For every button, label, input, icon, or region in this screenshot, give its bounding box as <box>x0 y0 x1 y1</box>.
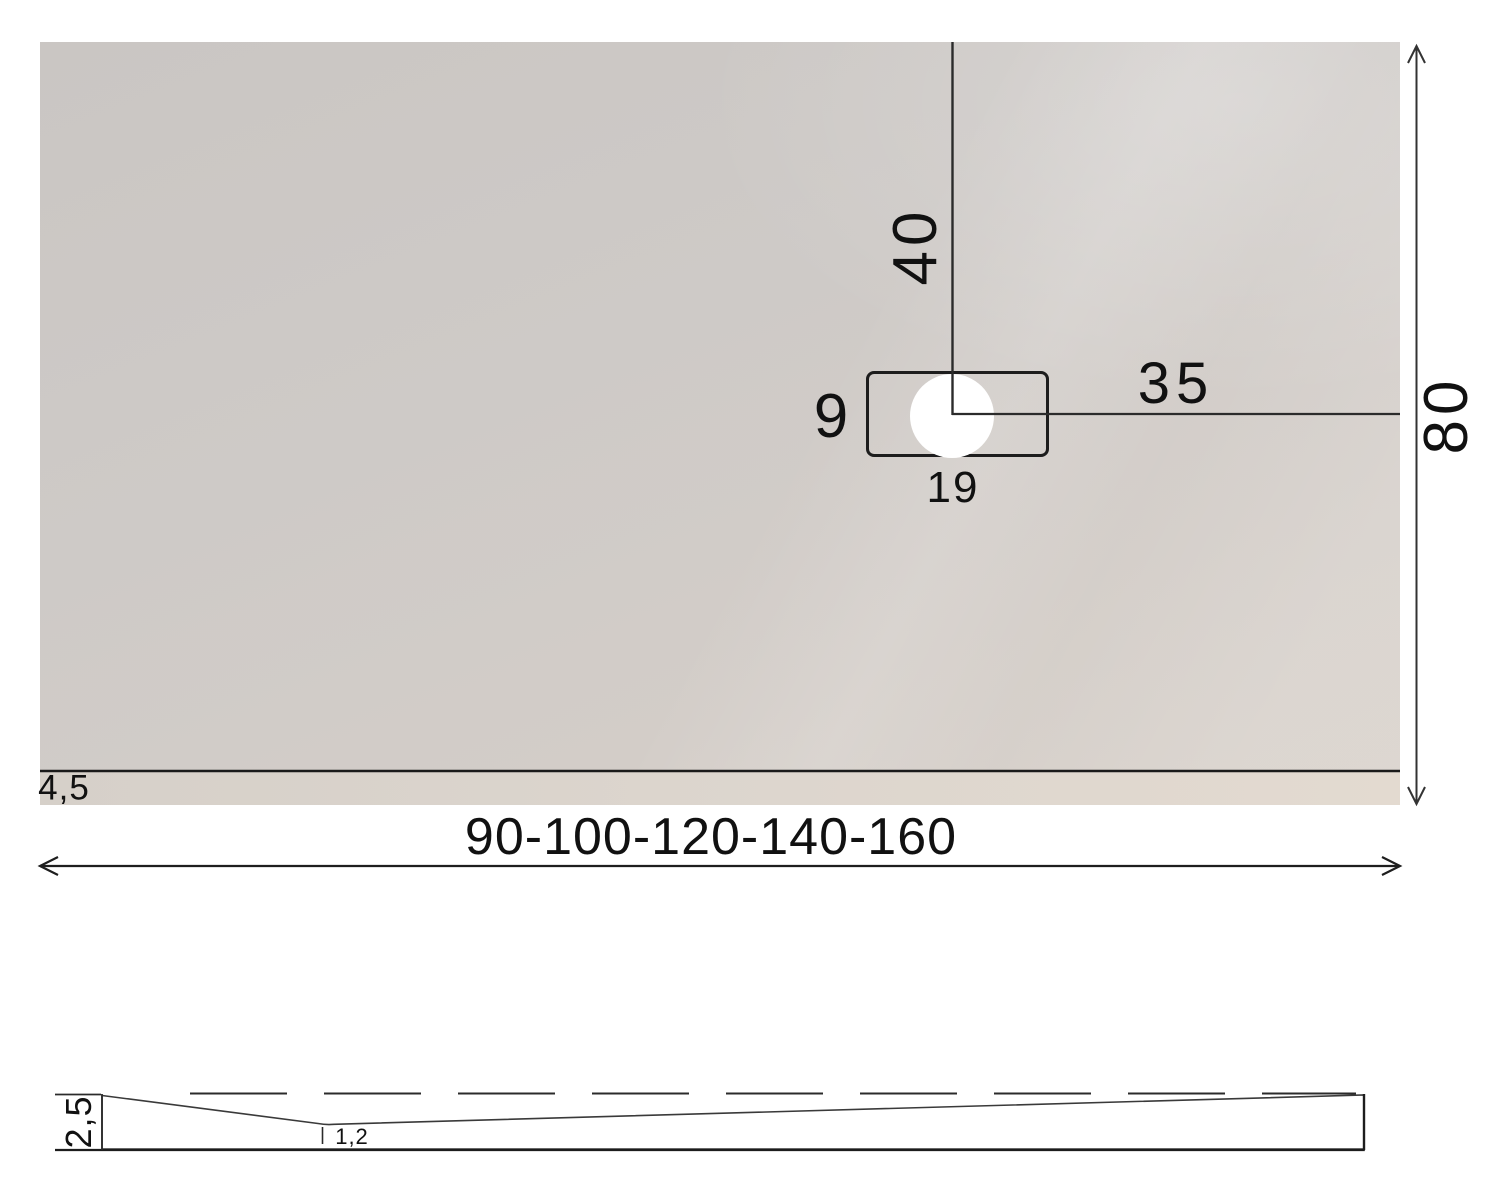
technical-drawing-canvas: 40 35 9 19 80 4,5 90-100-120-140-160 2,5… <box>0 0 1491 1192</box>
dim-label-width-options: 90-100-120-140-160 <box>465 811 957 863</box>
dim-label-profile-min-thickness: 1,2 <box>335 1126 369 1148</box>
dim-label-drain-offset-right: 35 <box>1138 355 1215 413</box>
dim-label-drain-offset-top: 40 <box>885 207 947 286</box>
dim-label-drain-cover-height: 9 <box>814 386 848 448</box>
dim-label-profile-edge-height: 2,5 <box>61 1095 97 1148</box>
drain-hole-circle <box>910 374 994 458</box>
tray-top-view <box>40 42 1400 805</box>
profile-outline <box>102 1095 1364 1149</box>
dim-label-edge-border-thickness: 4,5 <box>38 771 90 806</box>
dim-label-drain-cover-width: 19 <box>927 466 980 510</box>
dim-label-tray-depth: 80 <box>1416 376 1478 455</box>
tray-front-edge-strip <box>40 772 1400 805</box>
